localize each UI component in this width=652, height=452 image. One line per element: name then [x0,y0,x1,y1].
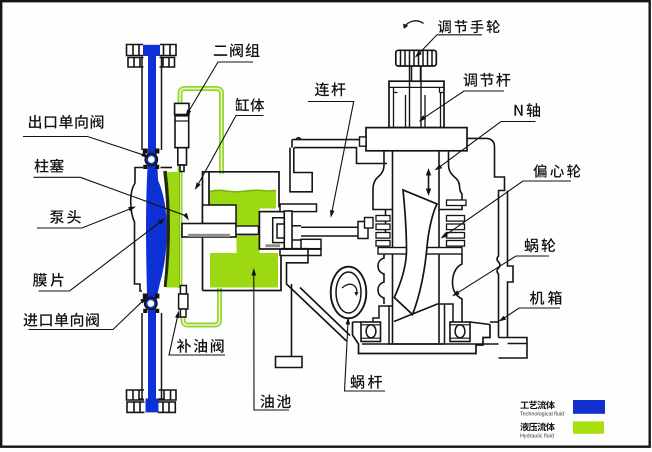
svg-text:Hydraulic fluid: Hydraulic fluid [520,434,554,440]
svg-text:Technological fluid: Technological fluid [520,412,564,418]
